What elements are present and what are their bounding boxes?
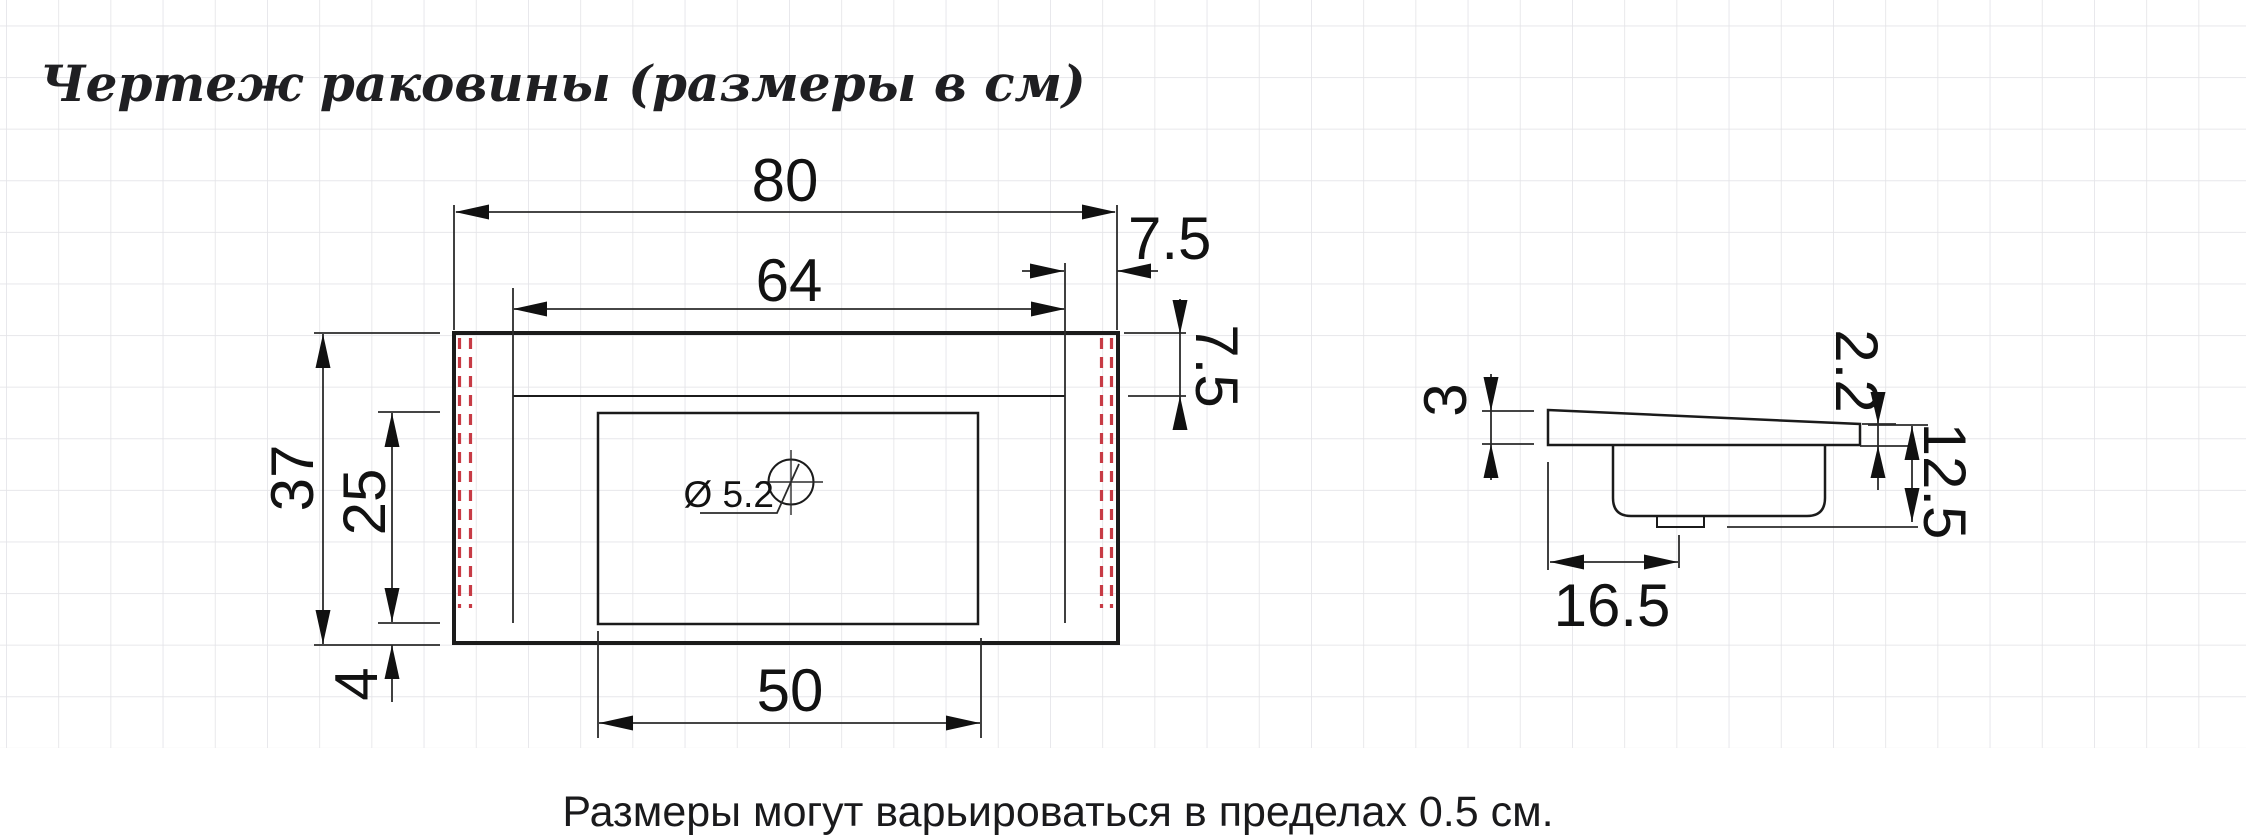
dim-inner-width-label: 64	[756, 247, 823, 314]
dim-right-offset-label: 7.5	[1128, 205, 1211, 272]
dim-rim-depth-label: 7.5	[1183, 324, 1250, 407]
sink-drawing-canvas: Чертеж раковины (размеры в см) Ø 5.2	[0, 0, 2246, 840]
dim-total-width-label: 80	[752, 147, 819, 214]
drawing-page: Чертеж раковины (размеры в см) Ø 5.2	[0, 0, 2246, 840]
dim-basin-depth-label: 25	[331, 469, 398, 536]
dim-basin-width-label: 50	[757, 657, 824, 724]
dim-drain-offset-label: 16.5	[1554, 572, 1671, 639]
dim-left-edge-label: 3	[1412, 383, 1479, 416]
dim-total-depth-label: 37	[259, 445, 326, 512]
dim-hole-diameter-label: Ø 5.2	[684, 474, 775, 515]
dim-total-height-label: 12.5	[1911, 423, 1978, 540]
dim-front-gap-label: 4	[323, 667, 390, 700]
dim-right-edge-label: 2.2	[1823, 329, 1890, 412]
page-title: Чертеж раковины (размеры в см)	[40, 54, 1086, 113]
tolerance-note: Размеры могут варьироваться в пределах 0…	[562, 788, 1553, 836]
